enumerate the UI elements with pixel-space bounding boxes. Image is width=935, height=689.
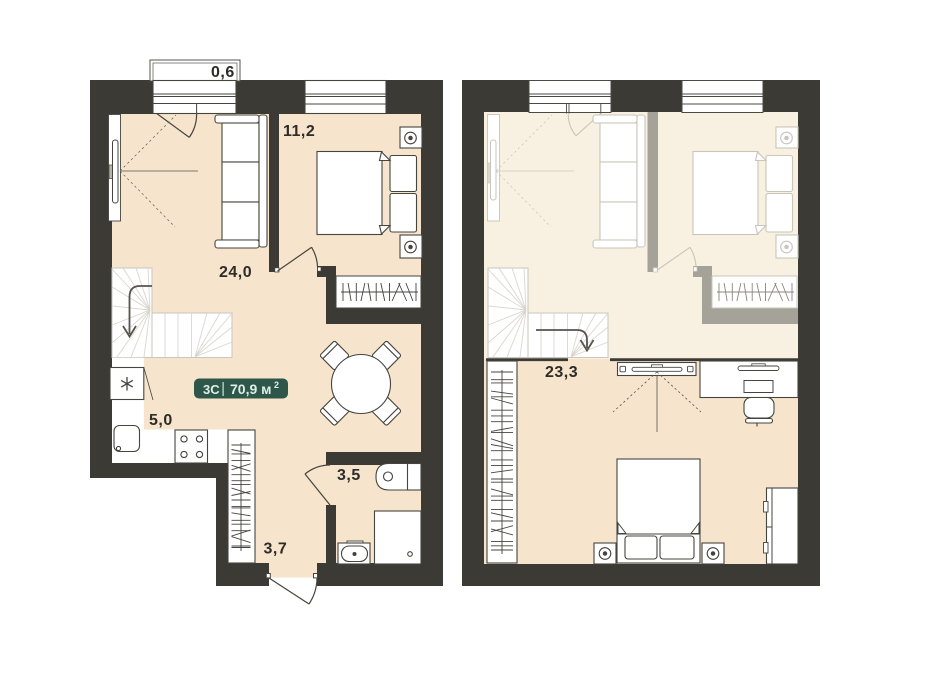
svg-text:23,3: 23,3 <box>545 364 578 381</box>
svg-text:0,6: 0,6 <box>211 64 235 81</box>
svg-text:2: 2 <box>274 380 279 390</box>
svg-text:24,0: 24,0 <box>219 264 252 281</box>
svg-text:3,7: 3,7 <box>264 541 288 558</box>
svg-text:5,0: 5,0 <box>149 412 173 429</box>
svg-text:70,9 м: 70,9 м <box>230 381 272 397</box>
svg-text:3С: 3С <box>203 382 220 397</box>
svg-text:11,2: 11,2 <box>283 123 315 140</box>
svg-text:3,5: 3,5 <box>337 467 361 484</box>
